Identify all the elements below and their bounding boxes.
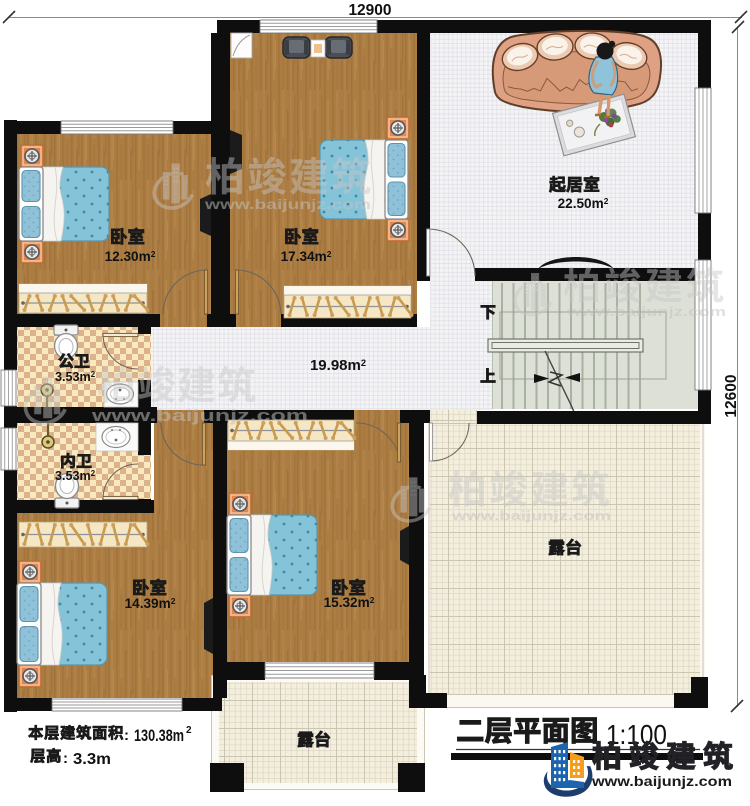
- svg-text:12900: 12900: [348, 2, 391, 19]
- svg-text::: :: [63, 750, 68, 767]
- svg-text:www.baijunjz.com: www.baijunjz.com: [451, 508, 611, 523]
- svg-text:15.32m2: 15.32m2: [324, 595, 375, 610]
- svg-text:19.98m2: 19.98m2: [310, 357, 366, 374]
- svg-text:www.baijunjz.com: www.baijunjz.com: [90, 407, 308, 425]
- svg-text:130.38m: 130.38m: [134, 727, 184, 745]
- svg-text:14.39m2: 14.39m2: [125, 596, 176, 611]
- svg-text:3.3m: 3.3m: [73, 751, 111, 768]
- svg-text:12600: 12600: [723, 374, 740, 417]
- svg-text:3.53m2: 3.53m2: [55, 469, 96, 483]
- svg-text:2: 2: [186, 725, 192, 736]
- svg-text:www.baijunjz.com: www.baijunjz.com: [591, 773, 732, 789]
- svg-text::: :: [124, 727, 129, 744]
- svg-text:12.30m2: 12.30m2: [105, 249, 156, 264]
- svg-text:www.baijunjz.com: www.baijunjz.com: [204, 197, 371, 212]
- svg-text:www.baijunjz.com: www.baijunjz.com: [566, 304, 726, 319]
- svg-text:3.53m2: 3.53m2: [55, 370, 96, 384]
- svg-text:17.34m2: 17.34m2: [281, 249, 332, 264]
- svg-text:22.50m2: 22.50m2: [558, 196, 609, 211]
